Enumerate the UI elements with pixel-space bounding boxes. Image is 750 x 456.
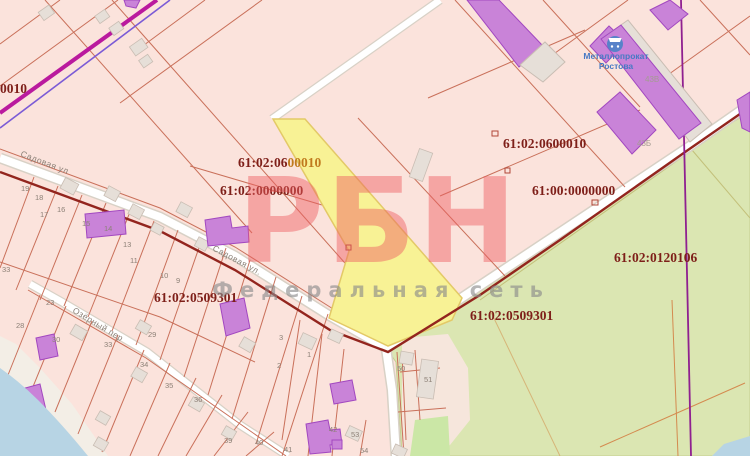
building-number: 43В — [645, 75, 659, 84]
parcel-number: 42 — [329, 425, 337, 434]
parcel-number: 36 — [194, 395, 202, 404]
parcel-number: 39 — [224, 436, 232, 445]
parcel-number: 18 — [35, 193, 43, 202]
parcel-number: 1 — [307, 350, 311, 359]
cadastral-label: 61:02:0120106 — [614, 250, 697, 265]
parcel-number: 14 — [104, 224, 112, 233]
parcel-number: 53 — [351, 430, 359, 439]
parcel-number: 23 — [46, 298, 54, 307]
parcel-number: 50 — [397, 364, 405, 373]
watermark-logo: РБН — [237, 152, 518, 290]
parcel-number: 10 — [160, 271, 168, 280]
cadastral-label: 0010 — [0, 81, 27, 96]
parcel-number: 16 — [57, 205, 65, 214]
parcel-number: 30 — [52, 335, 60, 344]
poi-label-line1: Металлопрокат — [583, 51, 648, 61]
parcel-number: 29 — [148, 330, 156, 339]
parcel-number: 3 — [279, 333, 283, 342]
parcel-number: 15 — [82, 219, 90, 228]
cadastral-map-canvas[interactable]: Металлопрокат Ростова Садовая улСадовая … — [0, 0, 750, 456]
parcel-number: 51 — [424, 375, 432, 384]
map-svg: Металлопрокат Ростова Садовая улСадовая … — [0, 0, 750, 456]
parcel-number: 41 — [284, 445, 292, 454]
parcel-number: 34 — [140, 360, 148, 369]
parcel-number: 19 — [21, 184, 29, 193]
parcel-number: 40 — [255, 438, 263, 447]
parcel-number: 9 — [176, 276, 180, 285]
parcel-number: 33 — [2, 265, 10, 274]
parcel-number: 28 — [16, 321, 24, 330]
parcel-number: 17 — [40, 210, 48, 219]
parcel-number: 35 — [165, 381, 173, 390]
watermark-subtitle: Федеральная сеть — [212, 278, 550, 302]
parcel-number: 2 — [277, 361, 281, 370]
building-number: 43Б — [637, 139, 651, 148]
green-patch — [410, 416, 450, 456]
parcel-number: 33 — [104, 340, 112, 349]
poi-label-line2: Ростова — [599, 61, 634, 71]
cadastral-label: 61:02:0509301 — [470, 308, 553, 323]
cadastral-label: 61:00:0000000 — [532, 183, 615, 198]
cadastral-label: 61:02:0600010 — [503, 136, 586, 151]
parcel-number: 54 — [360, 446, 368, 455]
parcel-number: 11 — [130, 256, 138, 265]
parcel-number: 13 — [123, 240, 131, 249]
watermark: РБН Федеральная сеть — [212, 152, 550, 302]
